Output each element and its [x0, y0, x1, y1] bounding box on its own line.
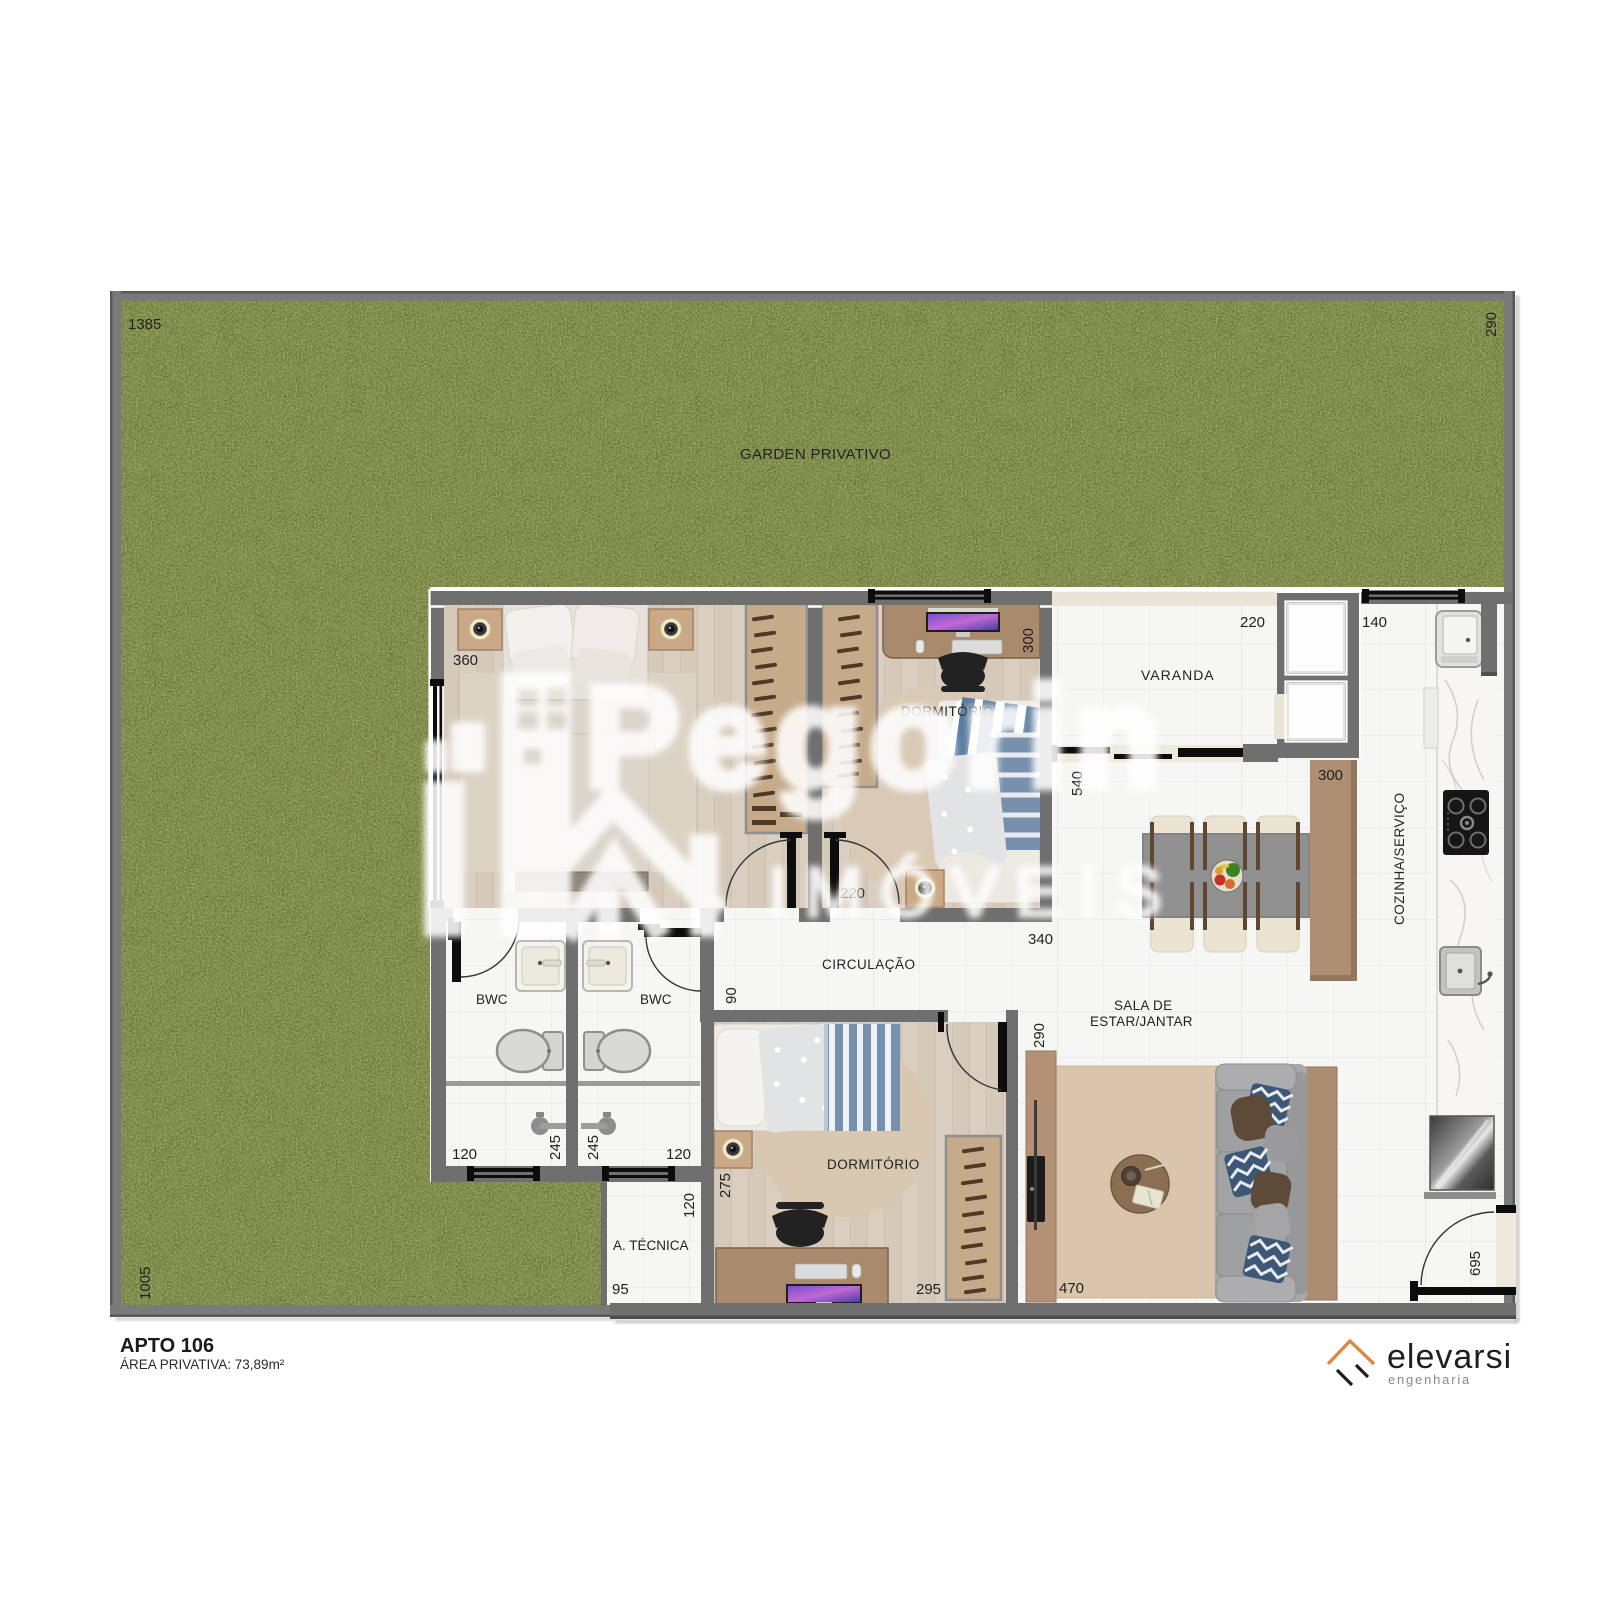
svg-text:BWC: BWC: [640, 992, 672, 1007]
svg-text:GARDEN PRIVATIVO: GARDEN PRIVATIVO: [740, 446, 891, 463]
svg-text:SALA DE: SALA DE: [1114, 998, 1172, 1013]
svg-text:CIRCULAÇÃO: CIRCULAÇÃO: [822, 957, 916, 972]
svg-text:ESTAR/JANTAR: ESTAR/JANTAR: [1090, 1014, 1193, 1029]
svg-text:120: 120: [681, 1193, 698, 1218]
svg-text:695: 695: [1467, 1251, 1484, 1276]
svg-text:engenharia: engenharia: [1388, 1372, 1471, 1387]
svg-text:295: 295: [916, 1281, 941, 1298]
svg-text:120: 120: [666, 1146, 691, 1163]
svg-text:90: 90: [723, 987, 740, 1004]
svg-text:340: 340: [1028, 931, 1053, 948]
svg-text:elevarsi: elevarsi: [1387, 1338, 1512, 1376]
svg-text:245: 245: [547, 1135, 564, 1160]
svg-text:220: 220: [1240, 614, 1265, 631]
svg-text:95: 95: [612, 1281, 629, 1298]
svg-text:300: 300: [1318, 767, 1343, 784]
svg-text:COZINHA/SERVIÇO: COZINHA/SERVIÇO: [1392, 792, 1407, 925]
svg-text:1005: 1005: [137, 1267, 154, 1300]
svg-text:470: 470: [1059, 1280, 1084, 1297]
svg-text:Pegorin: Pegorin: [585, 658, 1170, 817]
svg-text:DORMITÓRIO: DORMITÓRIO: [827, 1157, 920, 1172]
svg-text:A. TÉCNICA: A. TÉCNICA: [613, 1238, 689, 1253]
svg-text:360: 360: [453, 652, 478, 669]
svg-text:290: 290: [1031, 1023, 1048, 1048]
svg-text:APTO 106: APTO 106: [120, 1335, 214, 1357]
svg-text:275: 275: [717, 1173, 734, 1198]
svg-text:300: 300: [1020, 628, 1037, 653]
svg-text:ÁREA PRIVATIVA: 73,89m²: ÁREA PRIVATIVA: 73,89m²: [120, 1357, 285, 1372]
svg-text:IMÓVEIS: IMÓVEIS: [768, 853, 1179, 931]
svg-text:120: 120: [452, 1146, 477, 1163]
svg-text:140: 140: [1362, 614, 1387, 631]
svg-text:1385: 1385: [128, 316, 161, 333]
svg-text:BWC: BWC: [476, 992, 508, 1007]
svg-text:245: 245: [585, 1135, 602, 1160]
svg-text:290: 290: [1483, 312, 1500, 337]
